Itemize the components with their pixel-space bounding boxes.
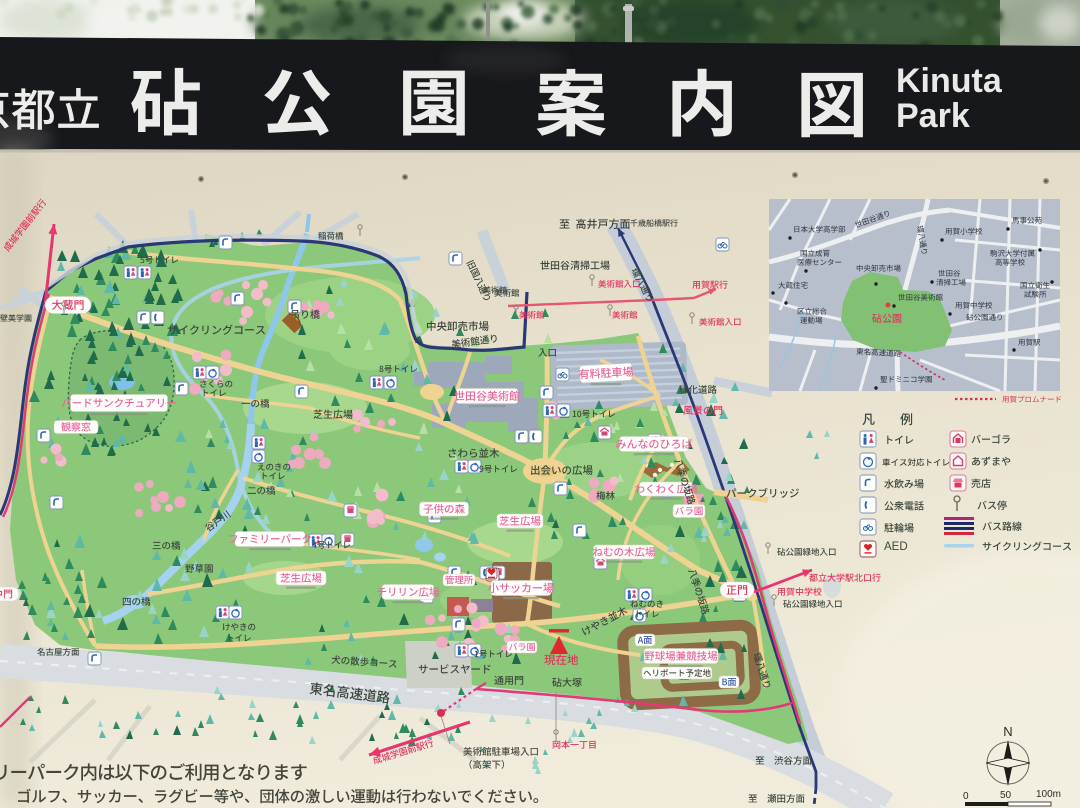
svg-text:Park: Park	[896, 97, 970, 135]
svg-text:50: 50	[1000, 790, 1012, 801]
svg-text:AED: AED	[884, 541, 908, 553]
svg-text:0: 0	[963, 791, 969, 802]
svg-text:Kinuta: Kinuta	[896, 62, 1003, 100]
svg-text:100m: 100m	[1036, 789, 1061, 800]
svg-text:N: N	[1003, 724, 1012, 739]
